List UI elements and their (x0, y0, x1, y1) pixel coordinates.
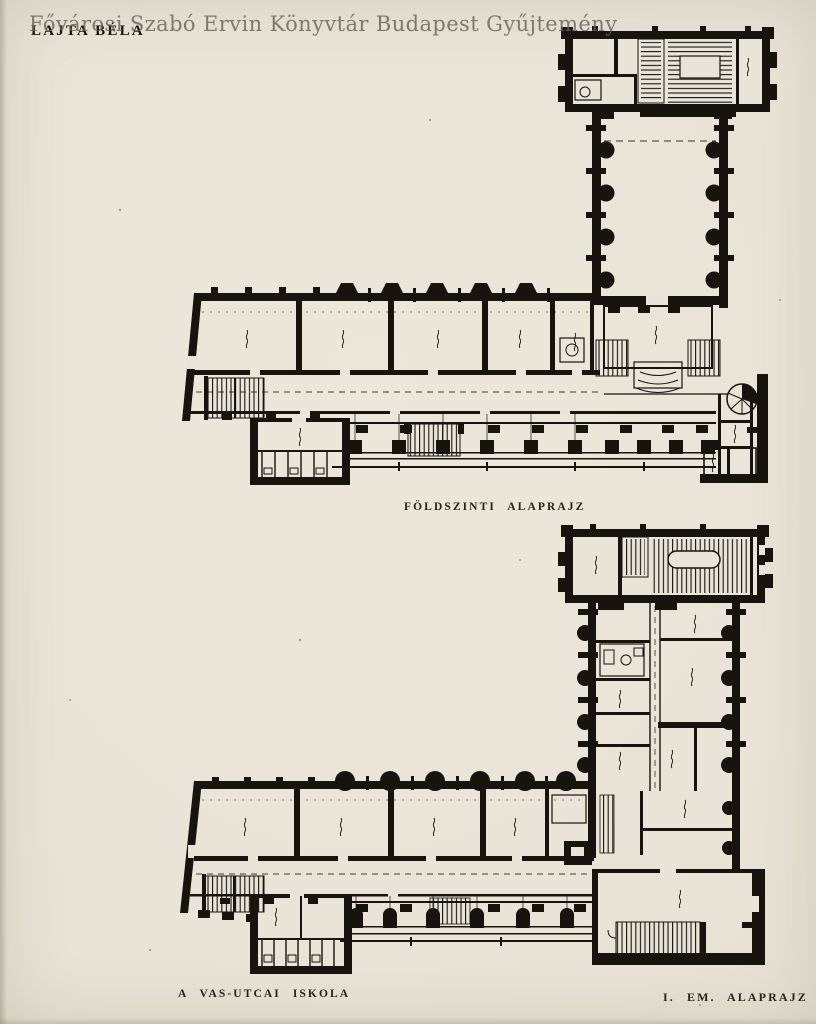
ff-head-block (558, 524, 773, 610)
scanned-archive-page: LAJTA BÉLA Fővárosi Szabó Ervin Könyvtár… (0, 0, 816, 1024)
gf-head-block (558, 26, 777, 119)
gf-annex-and-colonnade (250, 414, 716, 485)
ff-annex-and-colonnade (250, 894, 596, 974)
ff-classroom-wing (180, 771, 594, 922)
first-floor-plan (180, 524, 773, 974)
ff-upper-wing (577, 603, 746, 791)
caption-first-floor: I. EM. ALAPRAJZ (663, 990, 808, 1005)
library-watermark: Fővárosi Szabó Ervin Könyvtár Budapest G… (29, 12, 617, 36)
ff-bottom-right-room (592, 869, 765, 965)
ground-floor-plan (182, 26, 777, 485)
caption-building-name: A VAS-UTCAI ISKOLA (178, 988, 350, 1000)
gf-hall-wing (586, 112, 734, 313)
gf-vestibule-junction (560, 301, 768, 483)
caption-ground-floor: FÖLDSZINTI ALAPRAJZ (404, 501, 585, 513)
